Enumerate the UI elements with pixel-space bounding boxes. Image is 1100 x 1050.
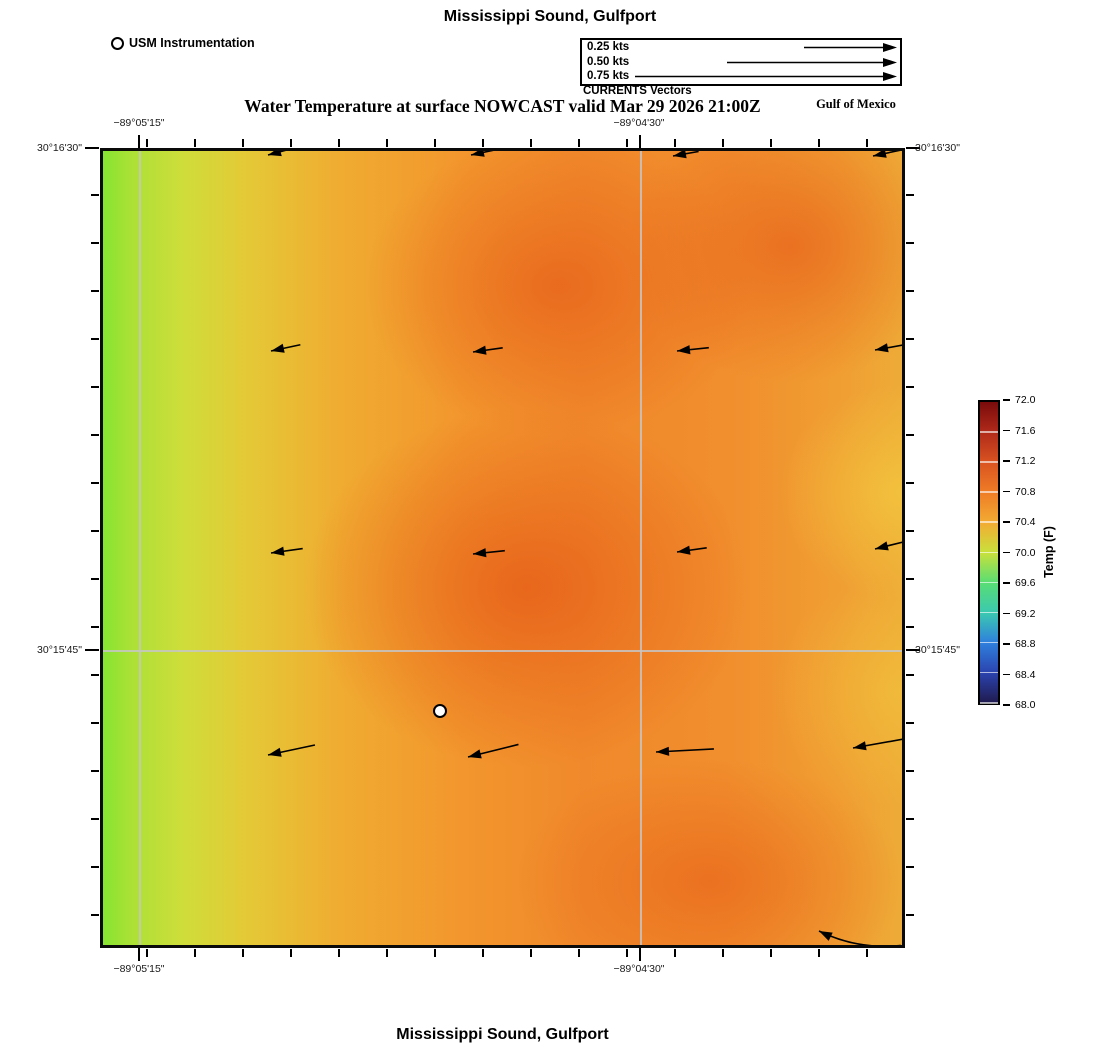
plot-page: Mississippi Sound, Gulfport USM Instrume… [0,0,1100,1050]
current-vectors-svg [103,151,902,945]
colorbar-tick-label: 68.8 [1015,638,1035,650]
colorbar-tick-dash [1003,491,1010,493]
lon-label-top-west: −89°05'15" [99,117,179,129]
station-legend-label: USM Instrumentation [129,36,255,50]
lat-label-top-left: 30°16'30" [8,142,82,154]
bottom-axis-ticks [100,949,905,957]
station-legend: USM Instrumentation [111,36,255,50]
colorbar-tick-dash [1003,552,1010,554]
colorbar-tick-label: 70.4 [1015,516,1035,528]
lon-label-top-east: −89°04'30" [599,117,679,129]
colorbar-title: Temp (F) [1042,526,1056,578]
lat-tick-left-mid [85,649,99,651]
lon-tick-top-east [639,135,641,148]
colorbar-tick-line [980,461,998,463]
colorbar-tick-dash [1003,430,1010,432]
colorbar-tick-label: 71.2 [1015,455,1035,467]
colorbar-tick-dash [1003,613,1010,615]
colorbar-tick-dash [1003,643,1010,645]
page-title: Mississippi Sound, Gulfport [0,8,1100,26]
legend-arrow-icon [592,56,897,69]
lon-tick-bottom-east [639,948,641,961]
colorbar-tick-dash [1003,399,1010,401]
colorbar-tick-line [980,582,998,584]
plot-subtitle: Water Temperature at surface NOWCAST val… [100,96,905,117]
colorbar-tick-dash [1003,521,1010,523]
legend-row-075: 0.75 kts [582,70,900,83]
region-label: Gulf of Mexico [790,97,922,112]
bottom-page-title: Mississippi Sound, Gulfport [100,1026,905,1044]
colorbar-tick-label: 72.0 [1015,394,1035,406]
colorbar-tick-dash [1003,582,1010,584]
colorbar-tick-label: 70.8 [1015,486,1035,498]
legend-row-050: 0.50 kts [582,56,900,69]
lat-tick-left-top [85,147,99,149]
left-axis-ticks [91,148,99,948]
station-circle-icon [111,37,124,50]
colorbar-tick-line [980,612,998,614]
colorbar-tick-label: 71.6 [1015,425,1035,437]
top-axis-ticks [100,139,905,147]
temperature-map [100,148,905,948]
colorbar-tick-line [980,491,998,493]
colorbar-tick-label: 68.0 [1015,699,1035,711]
lat-label-mid-right: 30°15'45" [915,644,960,656]
colorbar-tick-line [980,642,998,644]
colorbar-tick-line [980,552,998,554]
lat-label-top-right: 30°16'30" [915,142,960,154]
colorbar-tick-line [980,431,998,433]
colorbar-tick-line [980,672,998,674]
right-axis-ticks [906,148,914,948]
lon-tick-top-west [138,135,140,148]
lon-label-bottom-west: −89°05'15" [99,963,179,975]
colorbar-tick-line [980,702,998,704]
colorbar-tick-dash [1003,704,1010,706]
colorbar-tick-label: 69.6 [1015,577,1035,589]
usm-station-marker [433,704,447,718]
colorbar-tick-label: 68.4 [1015,669,1035,681]
lat-label-mid-left: 30°15'45" [8,644,82,656]
lon-label-bottom-east: −89°04'30" [599,963,679,975]
legend-row-025: 0.25 kts [582,41,900,54]
colorbar-tick-dash [1003,460,1010,462]
legend-arrow-icon [592,70,897,83]
colorbar [978,400,1000,705]
legend-arrow-icon [592,41,897,54]
colorbar-tick-line [980,521,998,523]
currents-legend-box: 0.25 kts 0.50 kts 0.75 kts [580,38,902,86]
colorbar-tick-label: 69.2 [1015,608,1035,620]
colorbar-tick-dash [1003,674,1010,676]
colorbar-tick-label: 70.0 [1015,547,1035,559]
lon-tick-bottom-west [138,948,140,961]
